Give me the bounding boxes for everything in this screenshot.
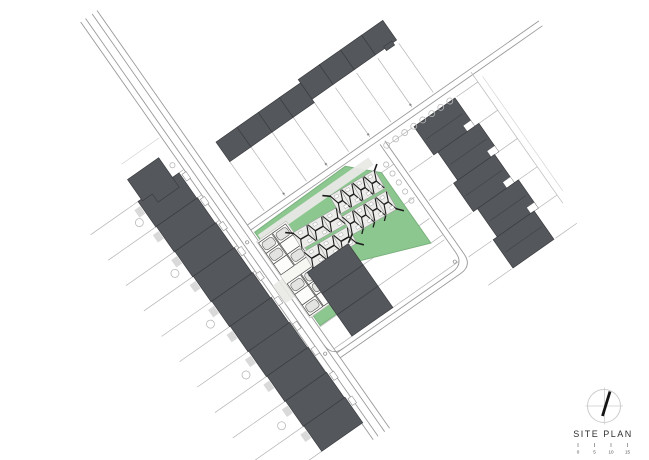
parcel-line [179, 169, 184, 172]
parcel-line [469, 241, 492, 257]
parcel-line [108, 226, 156, 260]
parcel-line [230, 162, 264, 211]
tree-icon [401, 188, 408, 195]
scale-bar: 051015 [577, 443, 631, 455]
tree-icon [240, 369, 251, 380]
tree-icon [389, 170, 396, 177]
parcel-line [91, 202, 139, 235]
tree-icon [134, 217, 145, 228]
north-needle-icon [603, 392, 611, 417]
parcel-line [251, 426, 304, 460]
site-plan-page: SITE PLAN 051015 [0, 0, 649, 460]
parcel-line [314, 102, 348, 151]
tree-icon [395, 179, 402, 186]
scale-label: 15 [625, 450, 631, 455]
parcel-line [197, 195, 201, 198]
manhole-icon [245, 240, 249, 244]
parcel-line [253, 271, 255, 273]
scale-label: 5 [593, 450, 596, 455]
parcel-line [449, 213, 472, 229]
parcel-line [162, 301, 212, 336]
parcel-line [268, 451, 321, 460]
parcel-line [496, 138, 517, 153]
site-plan-title: SITE PLAN [573, 429, 633, 439]
parcel-line [556, 223, 577, 238]
parcel-line [488, 269, 511, 285]
parcel-line [429, 184, 452, 200]
parcel-line [272, 132, 306, 181]
parcel-line [378, 58, 412, 107]
tree-icon [205, 319, 216, 330]
parcel-line [216, 220, 220, 223]
parcel-line [215, 376, 267, 412]
parcel-line [476, 110, 497, 125]
tree-icon [408, 197, 415, 204]
rotated-plan [0, 0, 649, 460]
scale-label: 0 [577, 450, 580, 455]
parcel-line [233, 401, 286, 438]
parcel-line [126, 251, 175, 285]
parcel-line [179, 326, 230, 362]
boundary-line [122, 138, 160, 164]
parcel-line [409, 156, 432, 172]
tree-icon [169, 162, 176, 169]
parcel-line [393, 261, 459, 307]
manhole-icon [323, 351, 327, 355]
parcel-line [357, 73, 391, 122]
parcel-line [251, 147, 285, 196]
tree-icon [276, 420, 287, 431]
tree-icon [169, 268, 180, 279]
site-plan-drawing: SITE PLAN 051015 [0, 0, 649, 460]
parcel-line [536, 195, 557, 210]
parcel-line [293, 117, 327, 166]
parcel-line [234, 246, 237, 248]
parcel-line [334, 336, 352, 349]
parcel-line [335, 88, 369, 137]
north-arrow-icon [586, 388, 624, 425]
parcel-line [197, 351, 248, 387]
scale-label: 10 [608, 450, 614, 455]
parcel-line [399, 43, 433, 92]
legend: SITE PLAN 051015 [573, 388, 633, 455]
tree-icon [383, 161, 390, 168]
parcel-line [144, 276, 193, 311]
parcel-line [516, 167, 537, 182]
